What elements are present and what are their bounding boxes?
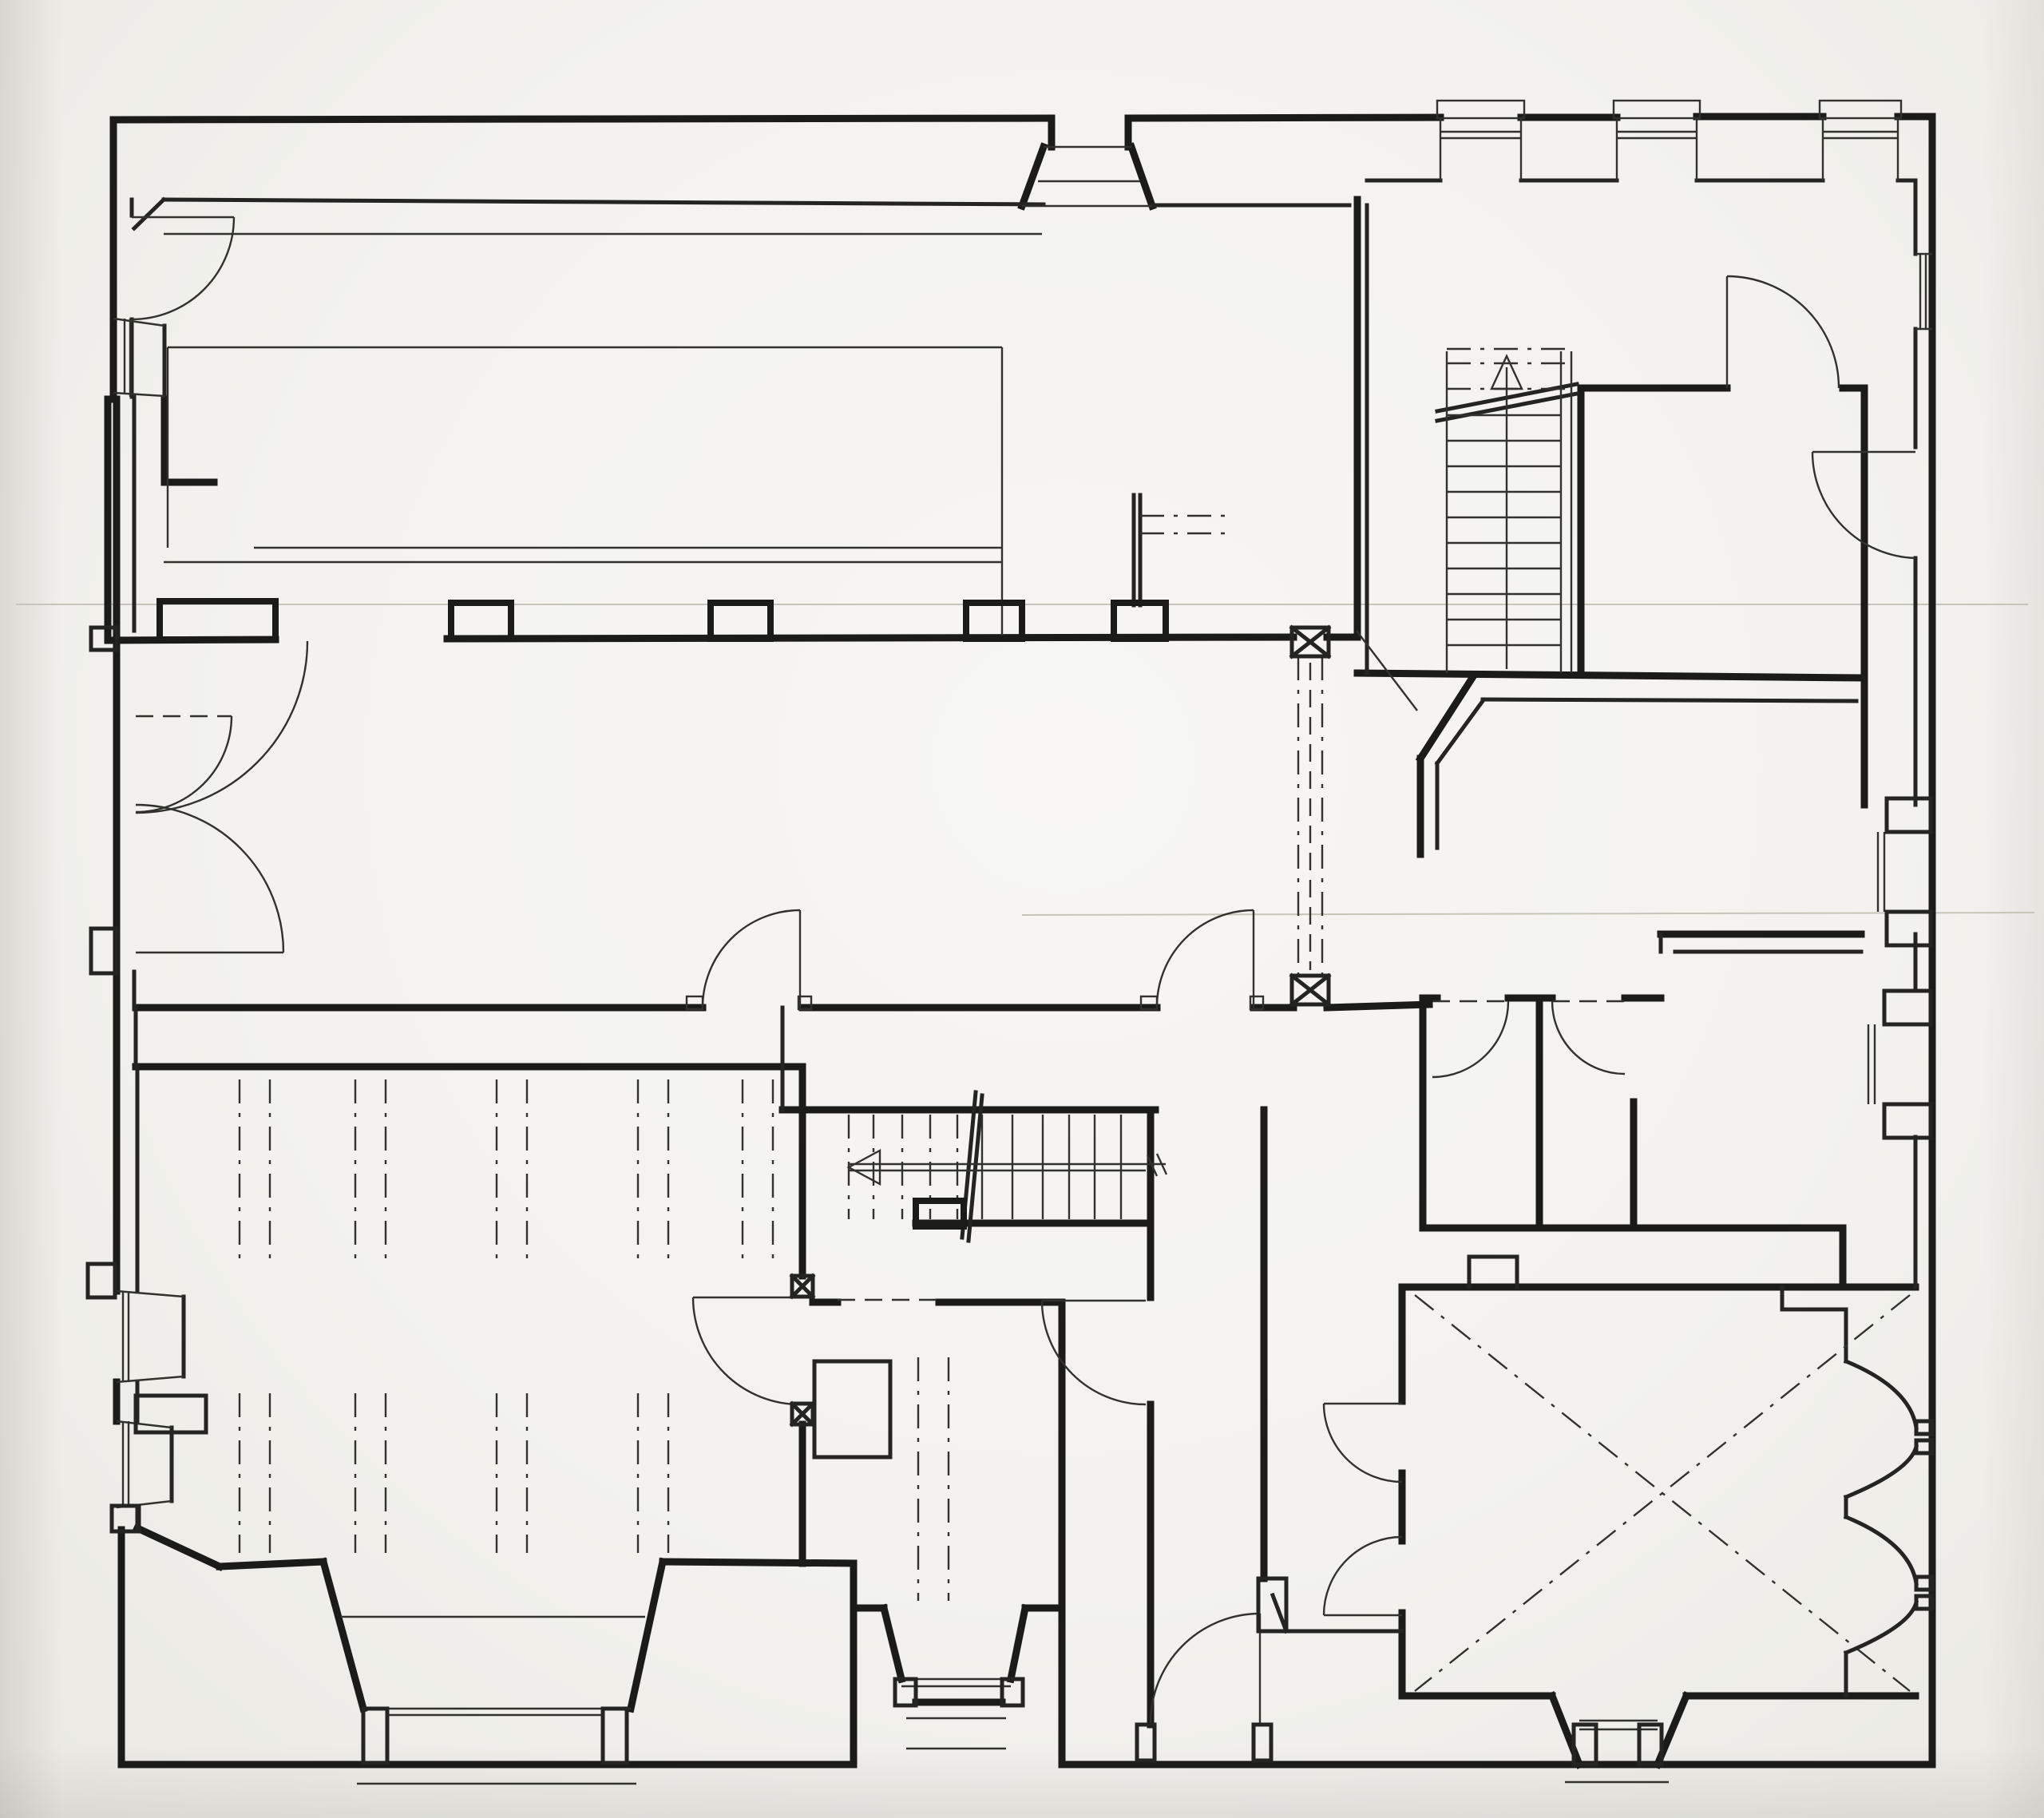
axis-and-joist-dashdot-lines [240,349,1910,1691]
door-swing-or-niche-curve [1324,1537,1402,1615]
door-swing-arcs-and-niche-curves [132,217,1916,1723]
floor-plan [0,0,2044,1818]
dashed-door-leaf-lines [136,663,1625,1300]
wall [631,1562,663,1709]
pier-block [451,603,511,639]
detail-line [117,1421,172,1428]
door-swing-or-niche-curve [132,217,234,319]
wall [1357,673,1861,678]
stair-arrow-head [849,1151,880,1184]
walls-thick [108,117,1932,1765]
door-swing-or-niche-curve [1042,1301,1146,1404]
wall [137,1528,220,1566]
pier-block [966,603,1022,639]
wall [1128,117,1440,118]
paper-fold-crease [1022,913,2034,915]
door-swing-or-niche-curve [1727,276,1839,388]
wall [884,1608,901,1679]
pier-block [603,1709,627,1763]
detail-line [113,393,164,396]
pier-block [1887,912,1931,945]
wall [1011,1608,1025,1679]
door-swing-or-niche-curve [1846,1602,1916,1653]
wall-face [1273,1595,1286,1631]
wall [663,1562,854,1563]
crossed-beam-marker [1292,628,1329,656]
wall-face [1437,701,1483,763]
pier-block [1887,798,1931,832]
door-swing-or-niche-curve [693,1297,800,1404]
wall [323,1562,363,1709]
pier-block [1820,101,1901,118]
pier-block [711,603,770,639]
wall-face [1483,699,1856,701]
wall [1327,1004,1429,1008]
scanned-floorplan-page [0,0,2044,1818]
walls-medium [132,180,1915,1696]
wall-face [164,200,1044,204]
piers-and-blocks [88,101,1932,1765]
pier-block [88,1264,115,1297]
wall [1420,678,1472,758]
pier-block [1884,991,1931,1024]
pier-block [1614,101,1700,118]
pier-block [363,1709,387,1763]
pier-block [1254,1725,1271,1761]
crossed-beam-marker [1292,976,1329,1004]
pier-block [1884,1104,1931,1138]
wall [1022,147,1044,206]
door-swing-or-niche-curve [1151,1614,1260,1723]
door-swing-or-niche-curve [1157,910,1254,1008]
pier-block [814,1361,890,1457]
detail-line [117,1376,184,1382]
pier-block [1437,101,1524,118]
door-swing-or-niche-curve [1552,1001,1625,1074]
door-swing-or-niche-curve [1324,1404,1402,1482]
door-swing-or-niche-curve [1846,1517,1916,1583]
pier-block [1137,1725,1155,1761]
wall [220,1562,323,1566]
door-swing-or-niche-curve [136,716,232,812]
pier-block [91,929,117,973]
pier-block [160,601,275,640]
door-swing-or-niche-curve [1846,1447,1916,1497]
wall [1131,147,1152,206]
paper-creases [16,604,2034,915]
door-swing-or-niche-curve [1432,1001,1508,1077]
wall-face [134,200,164,228]
detail-line [117,1291,184,1297]
pier-block [1114,603,1166,639]
wall [113,118,1052,120]
door-swing-or-niche-curve [1846,1361,1916,1428]
door-swing-or-niche-curve [136,805,283,953]
door-swing-or-niche-curve [136,641,307,813]
door-swing-or-niche-curve [703,910,800,1008]
